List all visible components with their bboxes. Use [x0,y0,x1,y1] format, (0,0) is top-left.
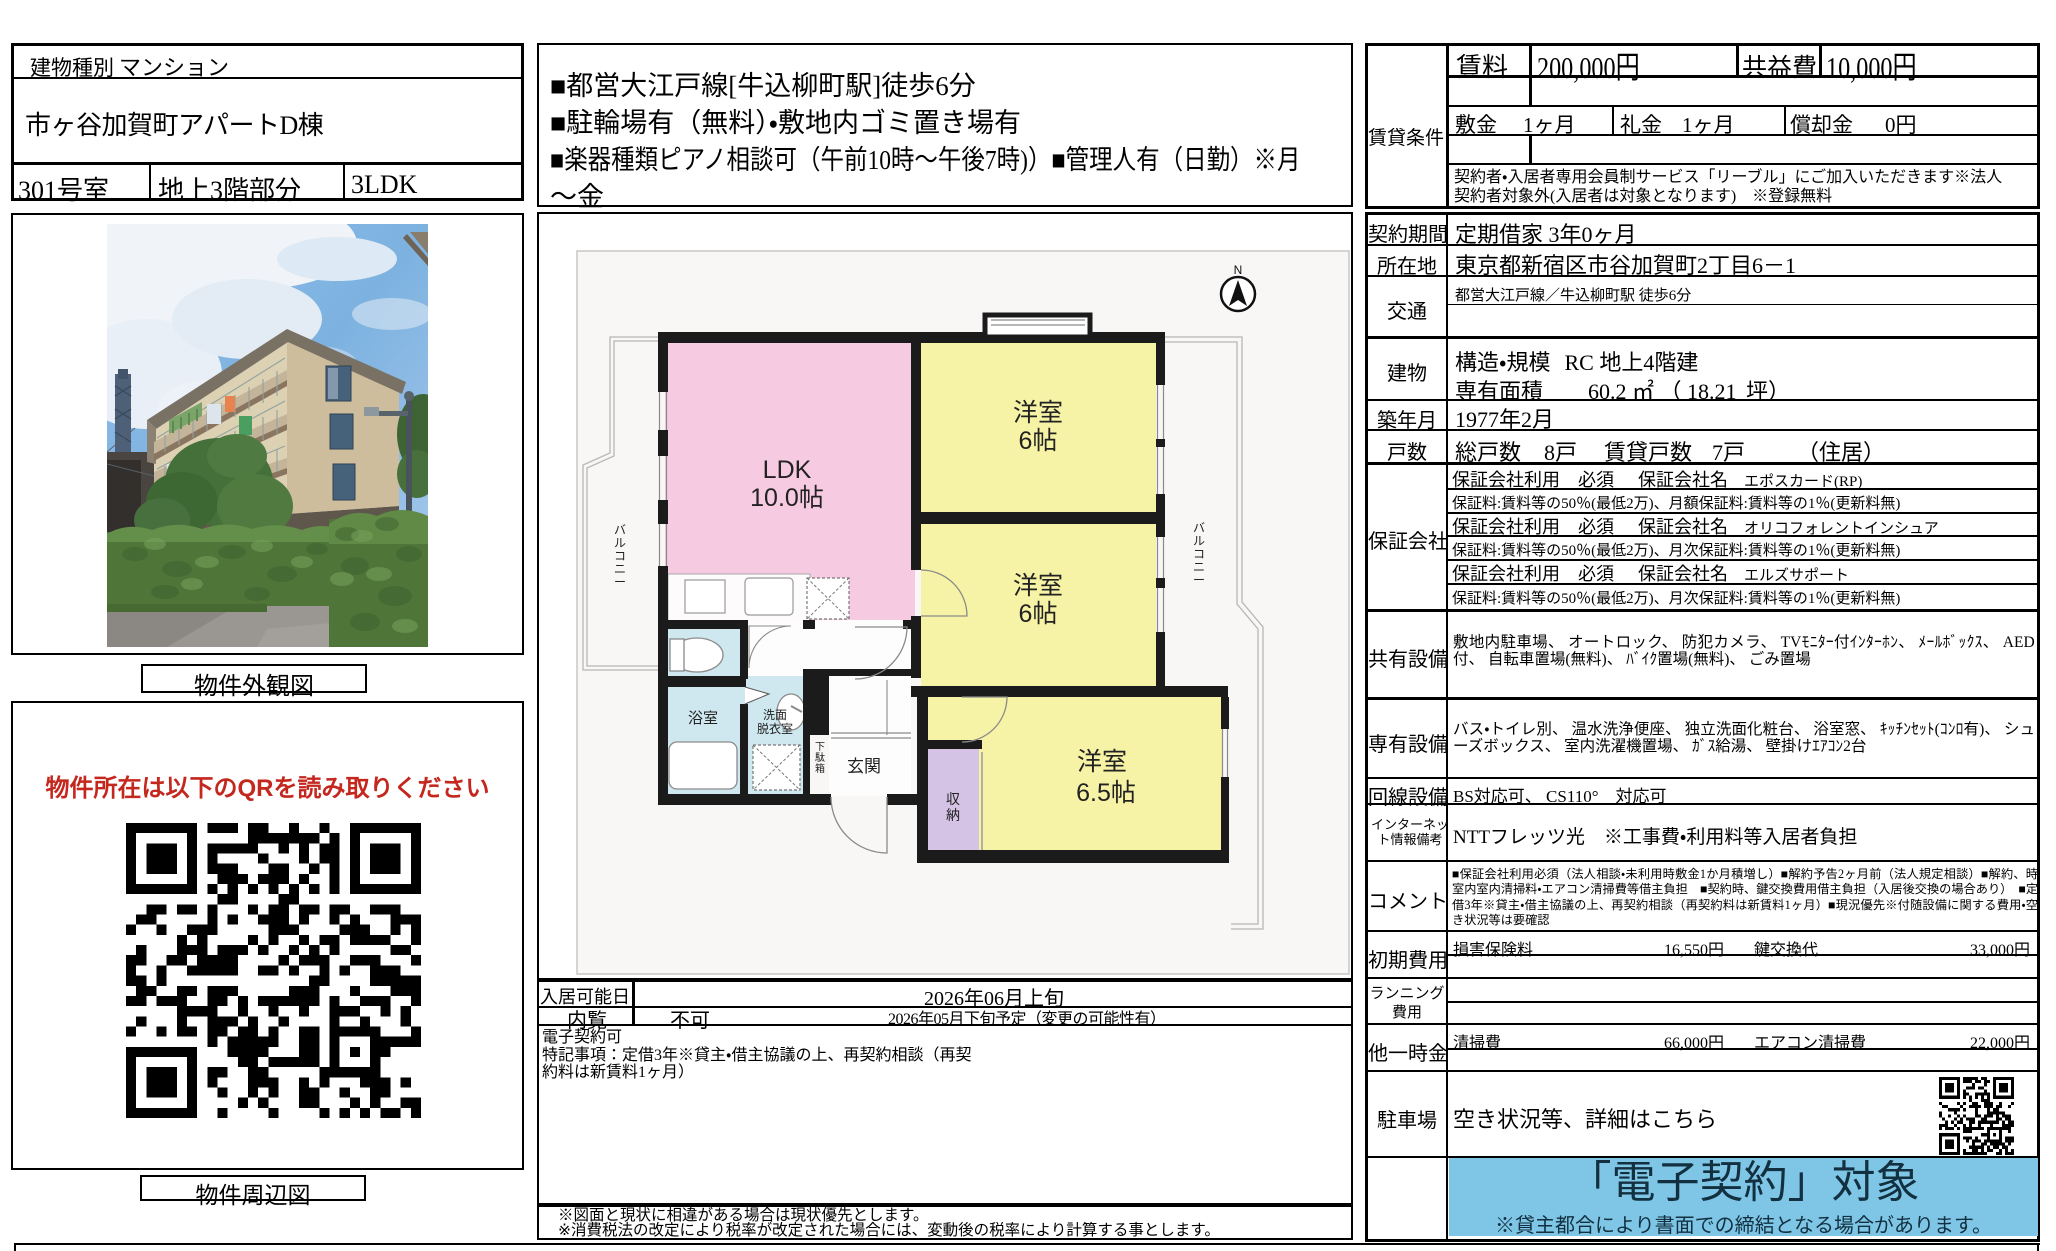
svg-text:納: 納 [946,807,960,823]
svg-text:収: 収 [946,791,960,807]
svg-text:箱: 箱 [815,762,825,775]
svg-text:脱衣室: 脱衣室 [757,721,793,736]
svg-text:ル: ル [614,536,626,550]
svg-text:6帖: 6帖 [1019,600,1058,628]
svg-text:コ: コ [614,549,626,563]
svg-text:洋室: 洋室 [1013,399,1063,427]
svg-text:ニ: ニ [614,562,626,576]
svg-text:ル: ル [1193,534,1205,548]
svg-text:ー: ー [614,575,626,589]
svg-text:玄関: 玄関 [847,757,881,776]
svg-text:洋室: 洋室 [1013,572,1063,600]
svg-text:バ: バ [614,523,626,537]
svg-text:バ: バ [1193,521,1205,535]
svg-text:ー: ー [1193,573,1205,587]
svg-text:ニ: ニ [1193,560,1205,574]
svg-text:10.0帖: 10.0帖 [750,484,824,512]
svg-text:洗面: 洗面 [763,708,787,722]
svg-text:LDK: LDK [763,456,812,484]
svg-text:N: N [1234,263,1243,277]
svg-text:下: 下 [815,742,825,753]
svg-text:6.5帖: 6.5帖 [1076,779,1136,807]
svg-text:6帖: 6帖 [1019,427,1058,455]
svg-text:駄: 駄 [815,751,825,764]
svg-text:コ: コ [1193,547,1205,561]
svg-text:洋室: 洋室 [1077,748,1127,776]
svg-text:浴室: 浴室 [688,710,718,727]
